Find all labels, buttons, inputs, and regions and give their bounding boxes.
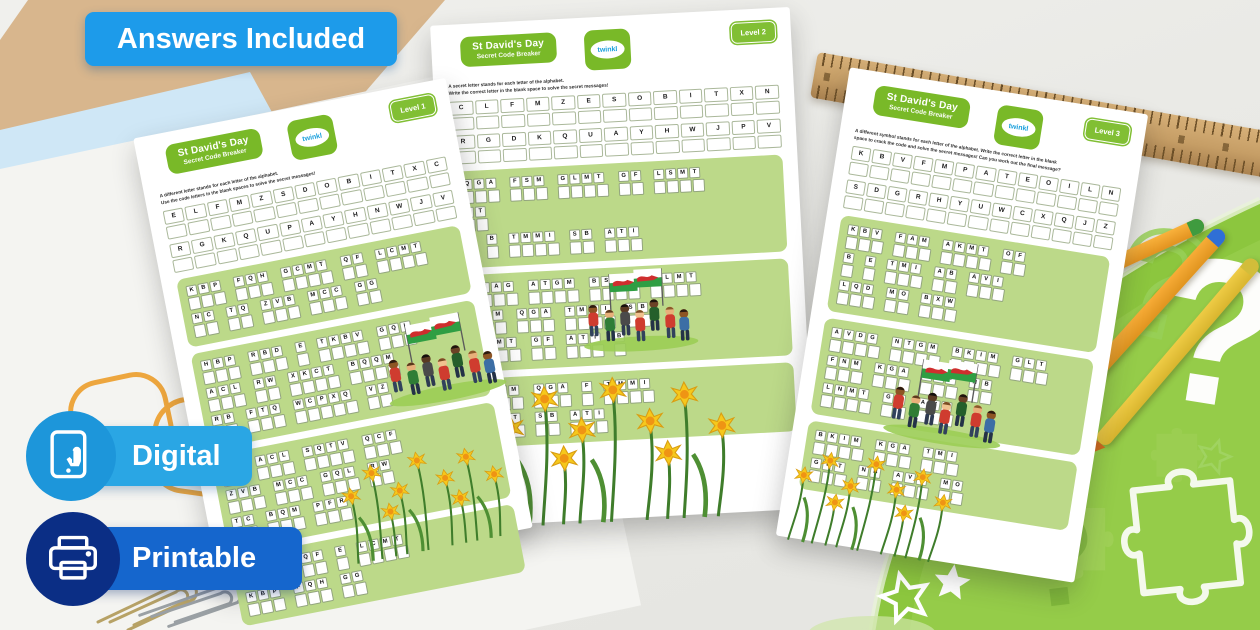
code-word: LQD: [836, 279, 877, 310]
code-letter-cell: T: [316, 336, 329, 349]
answer-cell: [510, 188, 523, 202]
code-letter-cell: B: [920, 292, 933, 305]
key-letter-cell: D: [502, 131, 526, 146]
code-letter-cell: K: [327, 334, 340, 347]
key-answer-cell: [172, 256, 194, 273]
answer-cell: [273, 413, 287, 428]
key-letter-cell: H: [655, 123, 679, 138]
code-letter-cell: I: [600, 303, 612, 315]
key-letter-cell: D: [294, 181, 317, 199]
answer-cell: [654, 180, 667, 194]
answer-cell: [896, 300, 910, 315]
code-letter-cell: Q: [361, 433, 374, 446]
answer-boxes: [880, 403, 907, 420]
code-letter-cell: M: [532, 231, 544, 243]
key-answer-cell: [231, 210, 253, 227]
answer-cell: [560, 393, 573, 407]
code-letter-cell: I: [593, 408, 605, 420]
answer-cell: [369, 289, 383, 304]
printer-icon: [47, 535, 99, 583]
answer-cell: [898, 454, 912, 469]
answer-cell: [619, 182, 632, 196]
code-letter-cell: Q: [304, 579, 317, 592]
code-letter-cell: M: [933, 371, 946, 384]
code-word: GQL: [376, 319, 418, 351]
code-letter-cell: I: [975, 349, 988, 362]
code-letter-cell: I: [639, 377, 651, 389]
key-answer-cell: [428, 172, 450, 189]
key-answer-cell: [282, 235, 304, 252]
code-letter-cell: T: [886, 258, 899, 271]
key-answer-cell: [654, 105, 678, 119]
twinkl-logo-cloud: twinkl: [590, 40, 625, 60]
answer-boxes: [605, 238, 644, 253]
answer-cell: [868, 478, 882, 493]
key-letter-cell: K: [213, 232, 236, 250]
answer-cell: [939, 250, 953, 265]
twinkl-logo: twinkl: [993, 104, 1045, 151]
key-letter-cell: M: [228, 194, 251, 212]
code-word: TMI: [884, 258, 925, 289]
answer-cell: [850, 370, 864, 385]
answer-cell: [927, 354, 941, 369]
answer-cell: [962, 359, 976, 374]
code-word: PFR: [312, 494, 354, 526]
key-answer-cell: [630, 141, 654, 155]
code-letter-cell: X: [327, 391, 340, 404]
product-preview-scene: ? ? ? St Davi: [0, 0, 1260, 630]
key-letter-cell: W: [680, 122, 704, 137]
code-letter-cell: L: [661, 272, 673, 284]
code-letter-cell: I: [910, 262, 923, 275]
answer-cell: [820, 393, 834, 408]
code-letter-cell: W: [378, 458, 391, 471]
code-letter-cell: G: [473, 178, 485, 190]
code-word: BKIM: [812, 429, 866, 462]
code-letter-cell: S: [600, 275, 612, 287]
key-letter-cell: F: [206, 198, 229, 216]
alphabet-key-grid: CLFMZESOBITXNRGDKQUAYHWJPV: [449, 84, 782, 164]
answer-cell: [543, 318, 556, 332]
code-letter-cell: S: [534, 411, 546, 423]
answer-cell: [528, 291, 541, 305]
key-letter-cell: Z: [551, 95, 575, 110]
code-letter-cell: L: [1023, 357, 1036, 370]
key-letter-cell: M: [934, 158, 955, 175]
code-word: RW: [252, 374, 281, 403]
code-letter-cell: R: [247, 349, 260, 362]
answer-cell: [354, 263, 368, 278]
code-letter-cell: B: [486, 233, 498, 245]
code-word: ZVB: [259, 293, 301, 325]
answer-cell: [509, 244, 522, 258]
answer-cell: [523, 187, 536, 201]
code-word: ACL: [254, 449, 296, 481]
answer-boxes: [654, 178, 706, 194]
answer-cell: [262, 358, 276, 373]
key-letter-cell: L: [1080, 182, 1101, 199]
answer-cell: [965, 254, 979, 269]
code-letter-cell: A: [897, 365, 910, 378]
code-letter-cell: M: [939, 477, 952, 490]
key-answer-cell: [758, 134, 782, 148]
code-word: F: [581, 380, 594, 406]
key-letter-cell: B: [338, 173, 361, 191]
answer-cell: [274, 490, 288, 505]
answer-cell: [345, 399, 359, 414]
answer-cell: [897, 377, 911, 392]
key-letter-cell: J: [706, 121, 730, 136]
code-letter-cell: H: [200, 358, 213, 371]
key-letter-cell: P: [955, 162, 976, 179]
code-word: E: [862, 255, 878, 282]
answer-cell: [475, 190, 488, 204]
code-letter-cell: T: [577, 332, 589, 344]
key-letter-cell: L: [475, 99, 499, 114]
answer-cell: [902, 484, 916, 499]
answer-cell: [667, 180, 680, 194]
answer-cell: [837, 368, 851, 383]
key-letter-cell: A: [975, 165, 996, 182]
answer-cell: [812, 441, 826, 456]
key-letter-cell: Y: [322, 211, 345, 229]
key-letter-cell: E: [1017, 172, 1038, 189]
code-word: NC: [191, 309, 220, 338]
answer-cell: [249, 361, 263, 376]
answer-cell: [282, 460, 296, 475]
code-letter-cell: Q: [516, 308, 528, 320]
code-letters: B: [842, 251, 856, 264]
code-letter-cell: C: [386, 245, 399, 258]
answer-boxes: [509, 242, 561, 258]
answer-cell: [883, 298, 897, 313]
code-word: B: [486, 233, 499, 259]
code-letter-cell: F: [630, 169, 642, 181]
code-letter-cell: L: [838, 279, 851, 292]
answer-cell: [571, 185, 584, 199]
code-word: GF: [530, 334, 556, 360]
code-letter-cell: M: [627, 378, 639, 390]
answer-cell: [642, 389, 655, 403]
twinkl-logo: twinkl: [583, 28, 631, 70]
answer-cell: [287, 305, 301, 320]
answer-cell: [273, 597, 287, 612]
answer-cell: [570, 421, 583, 435]
answer-cell: [391, 333, 405, 348]
answer-boxes: [614, 343, 627, 357]
key-letter-cell: L: [184, 203, 207, 221]
key-answer-cell: [319, 193, 341, 210]
code-letter-cell: B: [637, 301, 649, 313]
answer-cell: [914, 408, 928, 423]
code-letter-cell: M: [508, 384, 520, 396]
answer-cell: [295, 275, 309, 290]
answer-cell: [253, 495, 267, 510]
key-answer-cell: [1077, 197, 1098, 213]
key-letter-cell: K: [851, 145, 872, 162]
code-letter-cell: Z: [376, 381, 389, 394]
key-letter-cell: C: [425, 156, 448, 174]
code-word: ACL: [205, 381, 247, 413]
code-letter-cell: M: [934, 448, 947, 461]
code-letter-cell: P: [223, 354, 236, 367]
answer-cell: [978, 257, 992, 272]
key-answer-cell: [1036, 191, 1057, 207]
answer-cell: [932, 383, 946, 398]
code-letter-cell: G: [885, 363, 898, 376]
code-letter-cell: C: [296, 474, 309, 487]
code-letter-cell: R: [335, 495, 348, 508]
worksheet-title-block: St David's Day Secret Code Breaker: [460, 32, 557, 67]
answer-cell: [836, 291, 850, 306]
key-answer-cell: [1015, 187, 1036, 203]
answer-boxes: [582, 392, 595, 406]
code-word: QCF: [361, 428, 403, 460]
key-answer-cell: [577, 110, 601, 124]
key-answer-cell: [526, 112, 550, 126]
code-letter-cell: C: [284, 477, 297, 490]
answer-cell: [579, 344, 592, 358]
code-letters: SB: [569, 228, 595, 240]
code-letter-cell: M: [926, 341, 939, 354]
answer-cell: [567, 289, 580, 303]
answer-boxes: [296, 352, 310, 367]
code-letter-cell: T: [903, 338, 916, 351]
code-letter-cell: F: [894, 231, 907, 244]
twinkl-logo-cloud: twinkl: [294, 125, 331, 149]
answer-cell: [314, 511, 328, 526]
answer-cell: [692, 178, 705, 192]
key-answer-cell: [885, 201, 906, 217]
code-letter-cell: C: [202, 309, 215, 322]
code-word: GLMT: [557, 171, 609, 199]
code-letter-cell: G: [557, 173, 569, 185]
key-letter-cell: I: [1059, 178, 1080, 195]
answer-cell: [838, 445, 852, 460]
answer-cell: [918, 304, 932, 319]
code-letter-cell: K: [185, 284, 198, 297]
code-letter-cell: B: [980, 378, 993, 391]
answer-cell: [354, 581, 368, 596]
code-letter-cell: T: [257, 404, 270, 417]
key-answer-cell: [554, 145, 578, 159]
key-letter-cell: E: [577, 94, 601, 109]
code-letter-cell: K: [847, 224, 860, 237]
code-letter-cell: M: [382, 352, 395, 365]
code-letter-cell: S: [521, 175, 533, 187]
key-letter-cell: V: [757, 118, 781, 133]
code-letter-cell: K: [874, 361, 887, 374]
key-letter-cell: Z: [1095, 218, 1116, 235]
code-word: BXW: [918, 292, 959, 323]
code-word: HBP: [200, 353, 242, 385]
code-word: FSM: [509, 174, 548, 201]
code-letter-cell: I: [940, 400, 953, 413]
answer-cell: [296, 352, 310, 367]
code-word: TMMI: [564, 303, 616, 331]
key-letter-cell: V: [892, 152, 913, 169]
answer-boxes: [510, 186, 549, 201]
answer-cell: [548, 242, 561, 256]
answer-cell: [506, 292, 519, 306]
code-word: GF: [880, 391, 909, 420]
key-letter-cell: H: [929, 192, 950, 209]
code-word: QF: [299, 548, 328, 577]
answer-cell: [632, 181, 645, 195]
key-letter-cell: K: [527, 130, 551, 145]
answer-boxes: [1000, 260, 1027, 277]
code-letter-cell: T: [922, 446, 935, 459]
answer-cell: [227, 316, 241, 331]
code-letter-cell: P: [209, 279, 222, 292]
code-letter-cell: T: [581, 408, 593, 420]
code-letters: QGA: [533, 381, 572, 394]
level-badge: Level 2: [730, 21, 776, 44]
answer-cell: [522, 243, 535, 257]
code-word: ATGM: [528, 277, 580, 305]
answer-cell: [547, 394, 560, 408]
code-letter-cell: A: [254, 454, 267, 467]
answer-cell: [663, 284, 676, 298]
code-word: TMMI: [603, 377, 655, 405]
key-letter-cell: J: [1074, 215, 1095, 232]
answer-cell: [376, 259, 390, 274]
code-word: TMI: [920, 446, 961, 477]
answer-boxes: [531, 346, 557, 360]
code-letter-cell: N: [838, 356, 851, 369]
code-word: GF: [618, 169, 644, 195]
key-letter-cell: E: [163, 207, 186, 225]
key-letter-cell: G: [191, 236, 214, 254]
code-letter-cell: N: [857, 464, 870, 477]
key-answer-cell: [369, 218, 391, 235]
answer-cell: [378, 336, 392, 351]
code-letter-cell: K: [874, 439, 887, 452]
answer-cell: [331, 345, 345, 360]
answer-boxes: [650, 283, 702, 299]
code-word: GG: [354, 277, 383, 306]
answer-cell: [213, 290, 227, 305]
answer-cell: [676, 283, 689, 297]
answer-cell: [535, 423, 548, 437]
key-letter-cell: T: [704, 87, 728, 102]
code-letter-cell: I: [544, 230, 556, 242]
code-letter-cell: V: [336, 438, 349, 451]
answer-cell: [333, 402, 347, 417]
code-letter-cell: G: [530, 335, 542, 347]
answer-boxes: [565, 315, 617, 331]
code-letter-cell: E: [864, 255, 877, 268]
key-letter-cell: O: [316, 177, 339, 195]
answer-cell: [914, 352, 928, 367]
answer-cell: [327, 374, 341, 389]
key-letter-cell: S: [272, 186, 295, 204]
answer-cell: [920, 458, 934, 473]
code-letter-cell: C: [310, 365, 323, 378]
answer-boxes: [517, 318, 556, 333]
code-word: AVI: [914, 397, 955, 428]
code-letters: B: [486, 233, 499, 245]
answer-cell: [341, 583, 355, 598]
answer-cell: [294, 409, 308, 424]
code-word: NB: [855, 464, 884, 493]
code-letter-cell: B: [259, 347, 272, 360]
answer-cell: [247, 284, 261, 299]
answer-cell: [944, 385, 958, 400]
key-answer-cell: [475, 115, 499, 129]
level-badge: Level 3: [1083, 118, 1131, 146]
code-letter-cell: A: [830, 326, 843, 339]
code-letter-cell: M: [965, 242, 978, 255]
key-letter-cell: M: [526, 96, 550, 111]
code-letter-cell: B: [945, 267, 958, 280]
answer-cell: [1012, 262, 1026, 277]
answer-cell: [679, 179, 692, 193]
answer-cell: [318, 347, 332, 362]
code-letters: ATI: [604, 226, 643, 239]
answer-cell: [615, 286, 628, 300]
answer-cell: [943, 308, 957, 323]
answer-cell: [840, 263, 854, 278]
answer-cell: [275, 356, 289, 371]
code-letter-cell: L: [229, 381, 242, 394]
key-answer-cell: [603, 108, 627, 122]
answer-cell: [582, 392, 595, 406]
code-letter-cell: Z: [225, 488, 238, 501]
answer-cell: [193, 323, 207, 338]
answer-cell: [584, 184, 597, 198]
answer-cell: [534, 395, 547, 409]
code-letter-cell: M: [918, 235, 931, 248]
code-word: SB: [569, 228, 595, 254]
code-letter-cell: F: [385, 428, 398, 441]
key-answer-cell: [628, 107, 652, 121]
answer-cell: [495, 321, 508, 335]
answer-cell: [322, 298, 336, 313]
code-letter-cell: P: [316, 393, 329, 406]
key-letter-cell: C: [1012, 205, 1033, 222]
code-word: GLT: [1009, 355, 1050, 386]
code-letters: ATI: [565, 332, 604, 345]
answer-cell: [530, 319, 543, 333]
code-word: RW: [366, 458, 395, 487]
key-answer-cell: [973, 181, 994, 197]
key-answer-cell: [385, 180, 407, 197]
code-letter-cell: G: [649, 273, 661, 285]
answer-cell: [974, 361, 988, 376]
answer-cell: [509, 348, 522, 362]
code-letter-cell: M: [845, 385, 858, 398]
code-letter-cell: W: [292, 398, 305, 411]
key-answer-cell: [1051, 228, 1072, 244]
answer-cell: [302, 379, 316, 394]
code-letter-cell: Z: [259, 298, 272, 311]
code-letter-cell: G: [886, 440, 899, 453]
answer-cell: [240, 314, 254, 329]
answer-cell: [294, 592, 308, 607]
key-answer-cell: [989, 218, 1010, 234]
code-letter-cell: M: [306, 289, 319, 302]
answer-cell: [915, 486, 929, 501]
code-letter-cell: X: [287, 370, 300, 383]
key-answer-cell: [194, 252, 216, 269]
code-letter-cell: M: [885, 286, 898, 299]
key-answer-cell: [1056, 194, 1077, 210]
answer-boxes: [619, 181, 645, 195]
answer-cell: [919, 381, 933, 396]
code-letter-cell: M: [898, 260, 911, 273]
code-word: AVI: [890, 470, 931, 501]
